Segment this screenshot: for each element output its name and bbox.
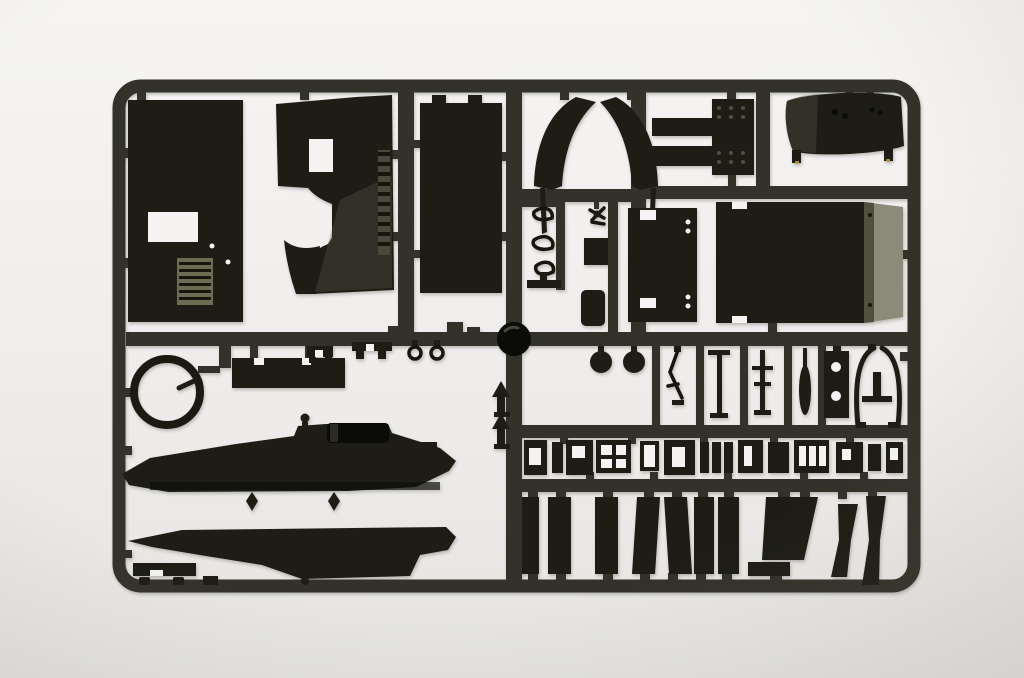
sprue-photo-svg	[0, 0, 1024, 678]
photo-vignette	[0, 0, 1024, 678]
product-photo	[0, 0, 1024, 678]
